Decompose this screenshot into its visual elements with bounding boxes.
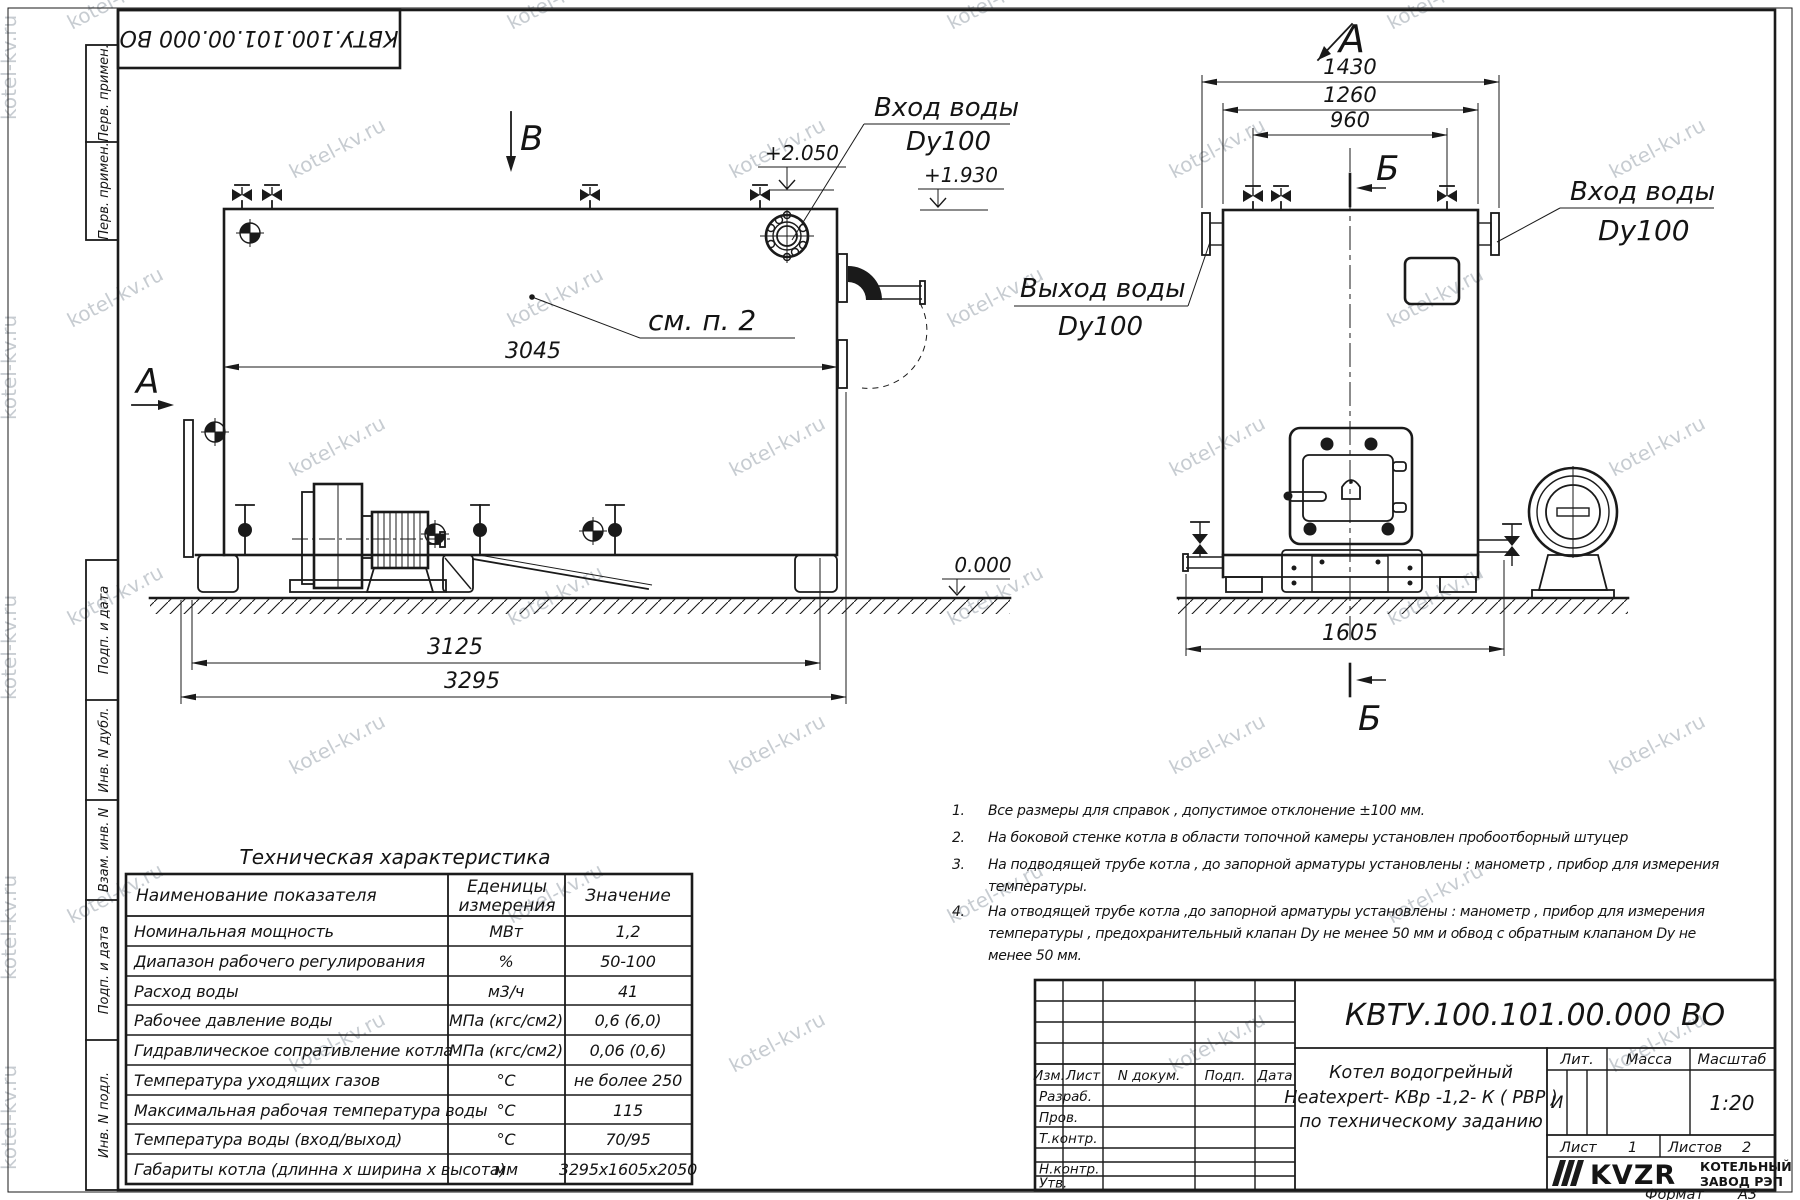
watermark-text: kotel-kv.ru — [285, 411, 389, 482]
view-label: А — [134, 362, 159, 402]
cell-unit: м3/ч — [488, 982, 524, 1001]
outlet-label-front: Выход воды Dy100 — [1014, 242, 1210, 342]
cell-name: Температура воды (вход/выход) — [134, 1130, 402, 1149]
dim-3045: 3045 — [224, 339, 837, 367]
margin-label: Перв. примен. — [97, 142, 112, 240]
doc-designation: КВТУ.100.101.00.000 ВО — [1345, 998, 1725, 1033]
safety-valve-icon — [750, 185, 770, 209]
lit-value: И — [1551, 1093, 1564, 1113]
margin-label: Взам. инв. N — [97, 807, 112, 892]
pipe-label: Вход воды — [1570, 177, 1715, 207]
table-row: Температура воды (вход/выход) °С 70/95 — [134, 1130, 651, 1149]
table-row: Габариты котла (длинна х ширина х высота… — [134, 1160, 697, 1179]
view-arrow-b: В — [506, 112, 543, 172]
watermark-text: kotel-kv.ru — [1605, 411, 1709, 482]
dim-text: 3125 — [427, 635, 483, 660]
watermark-text: kotel-kv.ru — [725, 411, 829, 482]
margin-label: Инв. N подл. — [97, 1072, 112, 1158]
drain-valve-icon — [606, 505, 624, 555]
sheet-label: Лист — [1559, 1140, 1597, 1156]
cell-value: не более 250 — [574, 1071, 682, 1090]
cell-value: 0,06 (0,6) — [590, 1041, 667, 1060]
sheets-value: 2 — [1742, 1140, 1751, 1156]
table-row: Максимальная рабочая температура воды °С… — [134, 1101, 643, 1120]
burner-unit — [290, 484, 452, 592]
cell-value: 115 — [613, 1101, 643, 1120]
tech-table-title: Техническая характеристика — [239, 845, 550, 869]
scale-value: 1:20 — [1710, 1091, 1755, 1115]
pipe-dn: Dy100 — [906, 127, 991, 157]
col-header: измерения — [458, 896, 555, 916]
section-label: Б — [1376, 149, 1399, 189]
view-label: А — [1336, 17, 1365, 61]
water-outlet-elbow — [838, 254, 927, 388]
elevation-text: 0.000 — [954, 553, 1011, 577]
note-line: На отводящей трубе котла ,до запорной ар… — [988, 904, 1705, 920]
dim-text: 1605 — [1322, 621, 1378, 646]
boiler-side-view: 3045 3125 3295 +2.050 +1.930 — [132, 93, 1019, 704]
scale-label: Масштаб — [1698, 1052, 1767, 1068]
base-frame-side — [198, 555, 837, 592]
watermark-text: kotel-kv.ru — [503, 262, 607, 333]
format-label: Формат — [1645, 1187, 1704, 1200]
outlet-flange-left — [1202, 213, 1223, 255]
watermark-text: kotel-kv.ru — [725, 709, 829, 780]
top-stamp: КВТУ.100.101.00.000 ВО — [118, 10, 400, 68]
doc-name-line: Heatexpert- КВр -1,2- К ( РВР ) — [1284, 1088, 1557, 1108]
front-pipe — [184, 420, 193, 557]
note-line: менее 50 мм. — [988, 948, 1082, 964]
watermark-text: kotel-kv.ru — [943, 0, 1047, 34]
note-num: 4. — [952, 904, 965, 920]
cell-unit: °С — [497, 1101, 517, 1120]
cell-value: 3295х1605х2050 — [559, 1160, 697, 1179]
dim-text: 960 — [1330, 108, 1370, 132]
note-line: температуры , предохранительный клапан D… — [988, 926, 1696, 942]
row-tkontr: Т.контр. — [1039, 1131, 1098, 1147]
col-ndoc: N докум. — [1118, 1068, 1181, 1084]
notes-list: 1. Все размеры для справок , допустимое … — [952, 803, 1719, 964]
table-row: Температура уходящих газов °С не более 2… — [134, 1071, 682, 1090]
cell-unit: МВт — [489, 922, 523, 941]
cell-unit: % — [498, 952, 513, 971]
safety-valve-icon — [580, 185, 600, 209]
section-label: Б — [1358, 699, 1381, 739]
dim-text: 3045 — [505, 339, 561, 364]
cell-unit: °С — [497, 1071, 517, 1090]
col-data: Дата — [1257, 1068, 1293, 1084]
elevation-1930: +1.930 — [918, 163, 1004, 210]
watermark-text: kotel-kv.ru — [285, 113, 389, 184]
note-line: На боковой стенке котла в области топочн… — [988, 830, 1628, 846]
inlet-flange-right — [1478, 213, 1499, 255]
title-block: КВТУ.100.101.00.000 ВО Изм. Лист N докум… — [1033, 980, 1792, 1192]
section-mark-b-bottom: Б — [1350, 664, 1386, 739]
col-list: Лист — [1065, 1068, 1101, 1084]
cell-name: Гидравлическое сопративление котла — [134, 1041, 453, 1060]
blower-fan — [1529, 466, 1617, 598]
side-valve-right — [1478, 524, 1521, 566]
col-header: Наименование показателя — [136, 886, 377, 906]
doc-name-line: по техническому заданию — [1299, 1112, 1542, 1132]
furnace-door — [1284, 428, 1413, 544]
note-num: 1. — [952, 803, 965, 819]
elevation-2050: +2.050 — [758, 141, 846, 190]
side-valve-left — [1183, 522, 1223, 571]
cell-value: 50-100 — [600, 952, 655, 971]
cell-name: Номинальная мощность — [134, 922, 334, 941]
row-utv: Утв. — [1039, 1176, 1067, 1192]
pipe-label: Выход воды — [1020, 274, 1186, 304]
cell-name: Максимальная рабочая температура воды — [134, 1101, 487, 1120]
view-arrow-a-front: А — [1318, 17, 1365, 61]
cell-unit: °С — [497, 1130, 517, 1149]
boiler-front-view: 960 1260 1430 1605 А — [1014, 17, 1715, 739]
tech-table: Техническая характеристика Наименование … — [126, 845, 697, 1184]
watermark-text: kotel-kv.ru — [1165, 113, 1269, 184]
table-row: Расход воды м3/ч 41 — [134, 982, 638, 1001]
elevation-text: +1.930 — [924, 163, 998, 187]
see-note-text: см. п. 2 — [648, 304, 756, 337]
note-num: 2. — [952, 830, 965, 846]
section-mark-b-top: Б — [1350, 149, 1399, 206]
drain-valve-icon — [471, 505, 489, 555]
inlet-label-front: Вход воды Dy100 — [1497, 177, 1715, 247]
datum-symbol — [579, 517, 607, 545]
note-line: температуры. — [988, 879, 1087, 895]
cell-name: Габариты котла (длинна х ширина х высота… — [134, 1160, 506, 1179]
safety-valve-icon — [232, 185, 252, 209]
col-podp: Подп. — [1205, 1068, 1246, 1084]
mass-label: Масса — [1626, 1052, 1672, 1068]
watermark-text: kotel-kv.ru — [0, 15, 21, 120]
dim-text: 1260 — [1323, 83, 1376, 107]
pipe-label: Вход воды — [874, 93, 1019, 123]
note-num: 3. — [952, 857, 965, 873]
cell-unit: МПа (кгс/см2) — [449, 1041, 563, 1060]
watermark-text: kotel-kv.ru — [63, 560, 167, 631]
note-line: На подводящей трубе котла , до запорной … — [988, 857, 1719, 873]
watermark-text: kotel-kv.ru — [1165, 1007, 1269, 1078]
cell-name: Расход воды — [134, 982, 238, 1001]
row-razrab: Разраб. — [1039, 1089, 1092, 1105]
cell-name: Диапазон рабочего регулирования — [133, 952, 426, 971]
view-arrow-a-side: А — [132, 362, 174, 410]
dim-text: 3295 — [444, 669, 500, 694]
safety-valve-icon — [262, 185, 282, 209]
watermark-text: kotel-kv.ru — [0, 875, 21, 980]
row-prov: Пров. — [1039, 1110, 1078, 1126]
table-row: Диапазон рабочего регулирования % 50-100 — [133, 952, 656, 971]
margin-label: Подп. и дата — [97, 586, 112, 675]
drawing-sheet: kotel-kv.rukotel-kv.rukotel-kv.rukotel-k… — [0, 0, 1800, 1200]
pipe-dn: Dy100 — [1058, 312, 1143, 342]
watermark-text: kotel-kv.ru — [63, 262, 167, 333]
format-note: Формат А3 — [1645, 1187, 1757, 1200]
table-row: Рабочее давление воды МПа (кгс/см2) 0,6 … — [134, 1011, 661, 1030]
pipe-dn: Dy100 — [1598, 214, 1690, 247]
ground-line — [1178, 598, 1628, 614]
table-row: Гидравлическое сопративление котла МПа (… — [134, 1041, 666, 1060]
cell-value: 0,6 (6,0) — [595, 1011, 662, 1030]
cell-value: 41 — [618, 982, 638, 1001]
doc-name-line: Котел водогрейный — [1329, 1063, 1513, 1083]
format-value: А3 — [1737, 1187, 1757, 1200]
cell-name: Температура уходящих газов — [134, 1071, 380, 1090]
watermark-text: kotel-kv.ru — [1605, 113, 1709, 184]
boiler-body-side — [224, 209, 837, 555]
watermark-layer: kotel-kv.rukotel-kv.rukotel-kv.rukotel-k… — [0, 0, 1709, 1170]
lit-label: Лит. — [1559, 1052, 1593, 1068]
watermark-text: kotel-kv.ru — [0, 1065, 21, 1170]
top-stamp-text: КВТУ.100.101.00.000 ВО — [120, 25, 399, 50]
dim-3295: 3295 — [181, 392, 846, 704]
watermark-text: kotel-kv.ru — [0, 315, 21, 420]
watermark-text: kotel-kv.ru — [725, 1007, 829, 1078]
ground-line — [150, 598, 1010, 614]
watermark-text: kotel-kv.ru — [503, 0, 607, 34]
watermark-text: kotel-kv.ru — [1165, 411, 1269, 482]
watermark-text: kotel-kv.ru — [1383, 0, 1487, 34]
watermark-text: kotel-kv.ru — [1383, 560, 1487, 631]
drain-valve-icon — [236, 505, 254, 555]
cell-unit: мм — [494, 1160, 518, 1179]
note-line: Все размеры для справок , допустимое отк… — [988, 803, 1425, 819]
col-header: Значение — [585, 886, 671, 906]
col-header: Еденицы — [467, 877, 547, 897]
cell-name: Рабочее давление воды — [134, 1011, 332, 1030]
watermark-text: kotel-kv.ru — [1605, 709, 1709, 780]
sheet-value: 1 — [1628, 1140, 1637, 1156]
view-label: В — [520, 119, 543, 159]
margin-label: Инв. N дубл. — [97, 707, 112, 792]
datum-symbol — [236, 219, 264, 247]
cell-unit: МПа (кгс/см2) — [449, 1011, 563, 1030]
margin-label: Подп. и дата — [97, 926, 112, 1015]
watermark-text: kotel-kv.ru — [1165, 709, 1269, 780]
watermark-text: kotel-kv.ru — [285, 709, 389, 780]
col-izm: Изм. — [1033, 1068, 1065, 1084]
sheets-label: Листов — [1667, 1140, 1722, 1156]
cell-value: 70/95 — [605, 1130, 650, 1149]
watermark-text: kotel-kv.ru — [503, 560, 607, 631]
elevation-text: +2.050 — [765, 141, 839, 165]
watermark-text: kotel-kv.ru — [0, 595, 21, 700]
org-line: КОТЕЛЬНЫЙ — [1700, 1159, 1792, 1174]
safety-valve-icon — [1271, 186, 1291, 210]
watermark-text: kotel-kv.ru — [1383, 262, 1487, 333]
margin-label: Перв. примен. — [97, 44, 112, 142]
cell-value: 1,2 — [616, 922, 641, 941]
